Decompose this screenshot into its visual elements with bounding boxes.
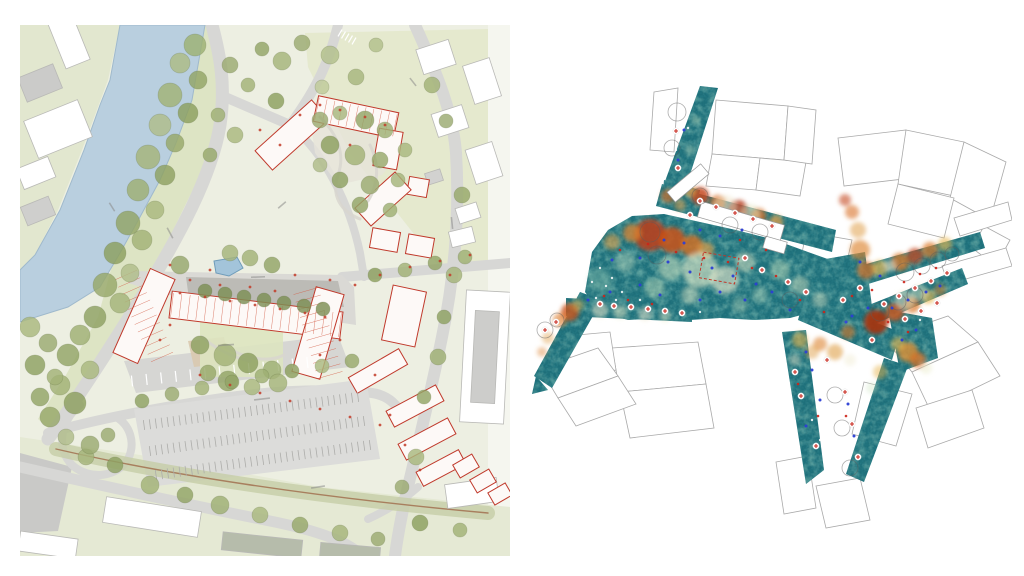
screenshot-canvas [0, 0, 1024, 576]
heatmap-root [532, 86, 1012, 528]
masterplan-svg [20, 25, 510, 556]
masterplan-figure [20, 25, 510, 556]
heatmap-svg [530, 70, 1012, 540]
heatmap-figure [530, 70, 1012, 540]
